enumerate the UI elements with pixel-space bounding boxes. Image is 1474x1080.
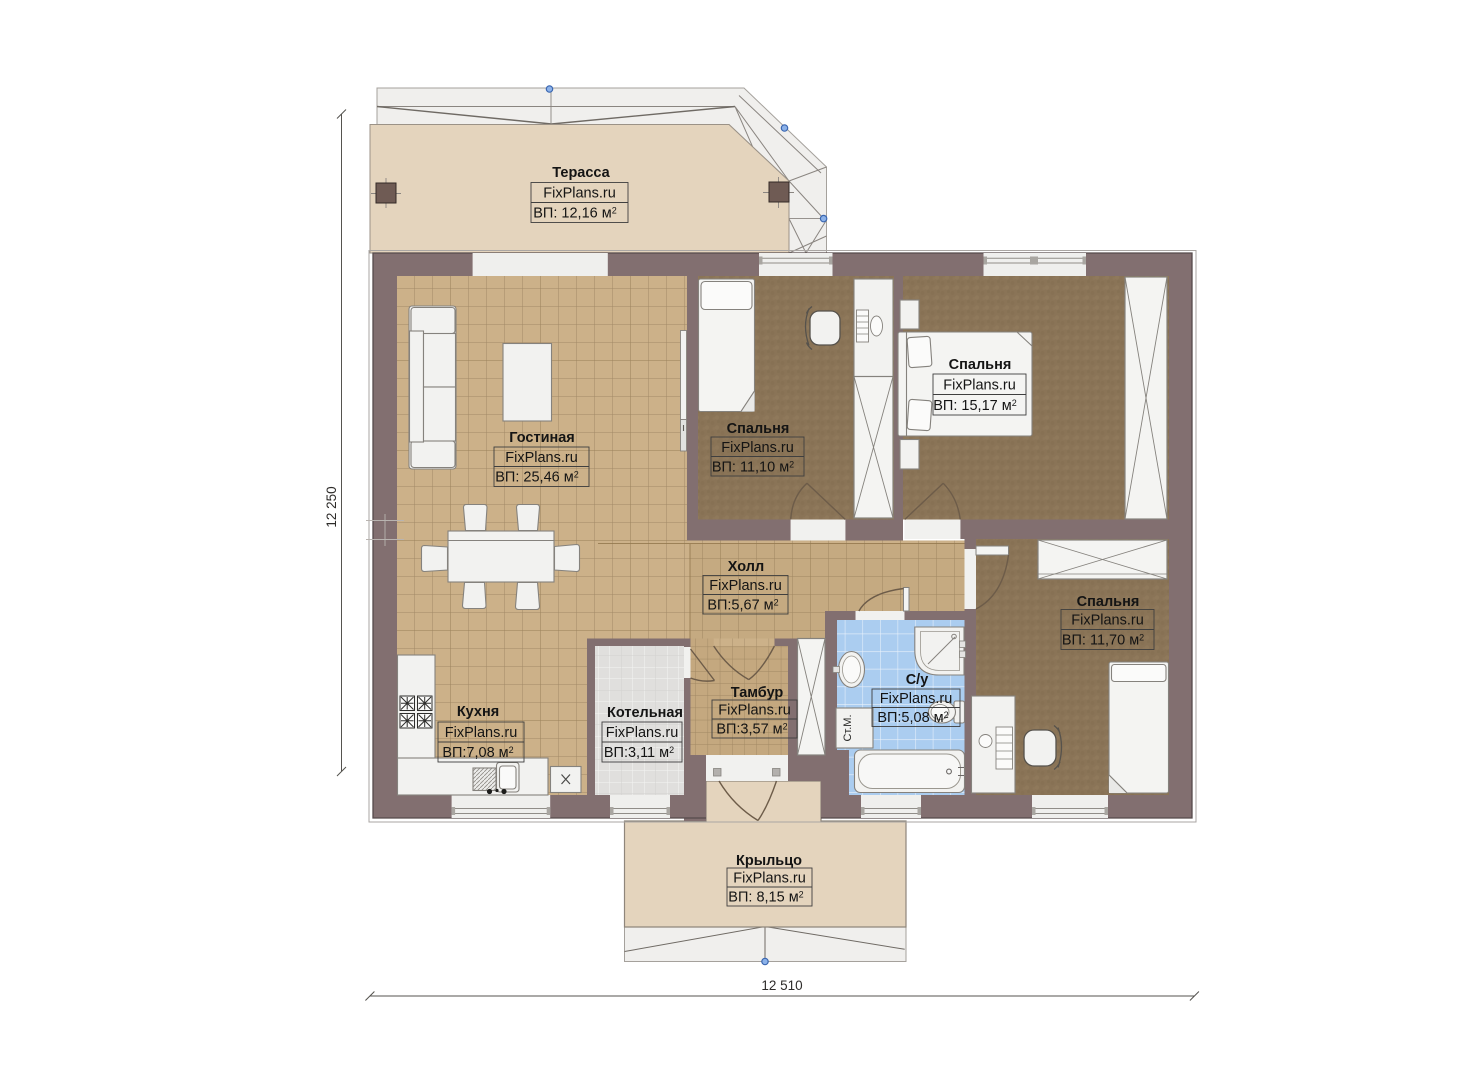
svg-text:FixPlans.ru: FixPlans.ru (505, 450, 578, 466)
svg-text:FixPlans.ru: FixPlans.ru (543, 186, 616, 202)
svg-text:FixPlans.ru: FixPlans.ru (709, 578, 782, 594)
svg-text:FixPlans.ru: FixPlans.ru (718, 703, 791, 719)
svg-text:FixPlans.ru: FixPlans.ru (1071, 613, 1144, 629)
svg-text:ВП:3,11 м2: ВП:3,11 м2 (604, 745, 674, 761)
svg-text:ВП: 25,46 м2: ВП: 25,46 м2 (495, 470, 578, 486)
svg-text:ВП: 8,15 м2: ВП: 8,15 м2 (728, 890, 803, 906)
svg-text:ВП: 15,17 м2: ВП: 15,17 м2 (933, 398, 1016, 414)
svg-text:Ст.М.: Ст.М. (842, 714, 854, 741)
svg-text:С/у: С/у (906, 672, 929, 688)
svg-text:12 510: 12 510 (761, 978, 802, 993)
svg-text:FixPlans.ru: FixPlans.ru (606, 725, 679, 741)
svg-text:Спальня: Спальня (1077, 594, 1140, 610)
svg-text:ВП:3,57 м2: ВП:3,57 м2 (716, 722, 787, 738)
svg-text:Холл: Холл (728, 559, 764, 575)
svg-text:ВП: 11,70 м2: ВП: 11,70 м2 (1062, 633, 1144, 649)
svg-text:FixPlans.ru: FixPlans.ru (721, 440, 794, 456)
svg-text:Гостиная: Гостиная (509, 430, 575, 446)
svg-text:ВП:7,08 м2: ВП:7,08 м2 (442, 745, 513, 761)
svg-text:ВП:5,08 м2: ВП:5,08 м2 (877, 710, 948, 726)
svg-text:ВП:5,67 м2: ВП:5,67 м2 (707, 598, 778, 614)
svg-text:Терасса: Терасса (552, 165, 610, 181)
svg-text:Крыльцо: Крыльцо (736, 853, 802, 869)
svg-text:FixPlans.ru: FixPlans.ru (445, 725, 518, 741)
svg-text:ВП: 11,10 м2: ВП: 11,10 м2 (712, 460, 794, 476)
svg-text:Котельная: Котельная (607, 705, 683, 721)
svg-text:Спальня: Спальня (727, 421, 790, 437)
svg-text:FixPlans.ru: FixPlans.ru (943, 378, 1016, 394)
svg-text:FixPlans.ru: FixPlans.ru (733, 871, 806, 887)
svg-text:FixPlans.ru: FixPlans.ru (880, 691, 953, 707)
svg-text:ВП: 12,16 м2: ВП: 12,16 м2 (533, 206, 616, 222)
svg-text:Спальня: Спальня (949, 357, 1012, 373)
svg-text:Кухня: Кухня (457, 704, 499, 720)
svg-text:Тамбур: Тамбур (731, 685, 784, 701)
svg-text:12 250: 12 250 (324, 486, 339, 527)
